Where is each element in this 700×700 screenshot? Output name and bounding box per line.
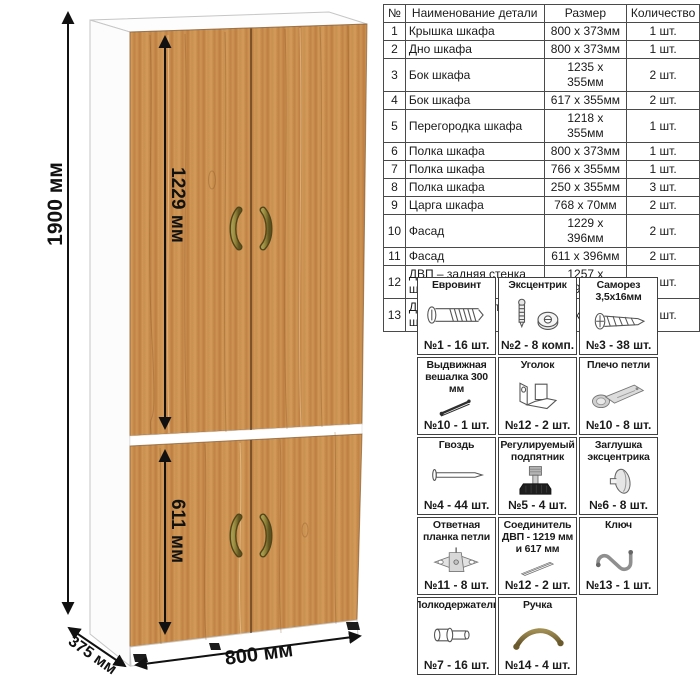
- table-row: 7Полка шкафа766 x 355мм1 шт.: [384, 161, 700, 179]
- wardrobe-side-panel: [90, 20, 130, 666]
- table-row: 1Крышка шкафа800 x 373мм1 шт.: [384, 23, 700, 41]
- hardware-item-title: Эксцентрик: [508, 280, 566, 292]
- door-handle-icon: [504, 617, 572, 653]
- hardware-item-ugolok: Уголок №12 - 2 шт.: [498, 357, 577, 435]
- table-cell: 2 шт.: [627, 197, 700, 215]
- table-cell: 6: [384, 143, 406, 161]
- table-row: 8Полка шкафа250 x 355мм3 шт.: [384, 179, 700, 197]
- pull-out-hanger-icon: [423, 395, 491, 418]
- table-cell: Крышка шкафа: [405, 23, 544, 41]
- header-number: №: [384, 5, 406, 23]
- table-cell: 2 шт.: [627, 59, 700, 92]
- hardware-item-count: №12 - 2 шт.: [505, 418, 571, 432]
- table-cell: Полка шкафа: [405, 179, 544, 197]
- hardware-item-cam-cover: Заглушка эксцентрика №6 - 8 шт.: [579, 437, 658, 515]
- table-cell: 1 шт.: [627, 110, 700, 143]
- hardware-item-samorez: Саморез 3,5х16мм №3 - 38 шт.: [579, 277, 658, 355]
- table-cell: 800 x 373мм: [544, 23, 627, 41]
- table-cell: Бок шкафа: [405, 92, 544, 110]
- hardware-item-title: Соединитель ДВП - 1219 мм и 617 мм: [500, 520, 575, 555]
- table-cell: 2: [384, 41, 406, 59]
- table-cell: 800 x 373мм: [544, 41, 627, 59]
- table-cell: 768 x 70мм: [544, 197, 627, 215]
- hardware-item-foot: Регулируемый подпятник №5 - 4 шт.: [498, 437, 577, 515]
- table-cell: 8: [384, 179, 406, 197]
- hardware-item-key: Ключ №13 - 1 шт.: [579, 517, 658, 595]
- hardware-item-count: №6 - 8 шт.: [589, 498, 648, 512]
- table-cell: 3: [384, 59, 406, 92]
- table-cell: 1 шт.: [627, 23, 700, 41]
- hinge-arm-icon: [585, 377, 653, 413]
- header-part-name: Наименование детали: [405, 5, 544, 23]
- wardrobe-foot: [346, 622, 360, 630]
- hardware-item-count: №7 - 16 шт.: [424, 658, 490, 672]
- hardware-item-eurovint: Евровинт №1 - 16 шт.: [417, 277, 496, 355]
- hardware-item-eccentric: Эксцентрик №2 - 8 комп.: [498, 277, 577, 355]
- table-cell: 11: [384, 248, 406, 266]
- hardware-item-count: №5 - 4 шт.: [508, 498, 567, 512]
- hinge-mounting-plate-icon: [423, 544, 491, 579]
- eccentric-cam-icon: [504, 297, 572, 333]
- table-row: 2Дно шкафа800 x 373мм1 шт.: [384, 41, 700, 59]
- table-cell: 617 x 355мм: [544, 92, 627, 110]
- table-cell: Фасад: [405, 215, 544, 248]
- hardware-item-title: Плечо петли: [587, 360, 650, 372]
- nail-icon: [423, 457, 491, 493]
- table-cell: 1235 x 355мм: [544, 59, 627, 92]
- table-cell: 12: [384, 266, 406, 299]
- shelf-pin-icon: [423, 617, 491, 653]
- table-cell: 250 x 355мм: [544, 179, 627, 197]
- hardware-item-count: №13 - 1 шт.: [586, 578, 652, 592]
- euro-screw-icon: [423, 297, 491, 333]
- hardware-item-title: Регулируемый подпятник: [500, 440, 575, 464]
- hex-key-icon: [585, 537, 653, 573]
- hardware-item-hinge-arm: Плечо петли №10 - 8 шт.: [579, 357, 658, 435]
- hardware-item-title: Выдвижная вешалка 300 мм: [419, 360, 494, 395]
- adjustable-foot-icon: [504, 464, 572, 499]
- dimension-height-label: 1900 мм: [44, 162, 68, 246]
- table-cell: 1 шт.: [627, 161, 700, 179]
- table-cell: Полка шкафа: [405, 161, 544, 179]
- table-row: 11Фасад611 x 396мм2 шт.: [384, 248, 700, 266]
- table-cell: Перегородка шкафа: [405, 110, 544, 143]
- self-tapping-screw-icon: [585, 304, 653, 339]
- hardware-item-count: №11 - 8 шт.: [424, 578, 489, 592]
- table-cell: 1229 x 396мм: [544, 215, 627, 248]
- hardware-item-count: №10 - 8 шт.: [586, 418, 652, 432]
- hardware-item-title: Ключ: [605, 520, 632, 532]
- table-row: 9Царга шкафа768 x 70мм2 шт.: [384, 197, 700, 215]
- table-row: 4Бок шкафа617 x 355мм2 шт.: [384, 92, 700, 110]
- header-size: Размер: [544, 5, 627, 23]
- hardware-item-shelf-pin: Полкодержатель №7 - 16 шт.: [417, 597, 496, 675]
- table-cell: 800 x 373мм: [544, 143, 627, 161]
- wardrobe-illustration: 1900 мм 1229 мм 611 мм 800 мм 375 мм: [0, 0, 430, 700]
- table-row: 5Перегородка шкафа1218 x 355мм1 шт.: [384, 110, 700, 143]
- hardware-item-count: №14 - 4 шт.: [505, 658, 571, 672]
- table-cell: 766 x 355мм: [544, 161, 627, 179]
- table-cell: 10: [384, 215, 406, 248]
- dimension-upper-door-label: 1229 мм: [166, 167, 188, 243]
- table-cell: 1: [384, 23, 406, 41]
- table-row: 6Полка шкафа800 x 373мм1 шт.: [384, 143, 700, 161]
- hardware-item-hanger: Выдвижная вешалка 300 мм №10 - 1 шт.: [417, 357, 496, 435]
- hardware-grid: Евровинт №1 - 16 шт. Эксцентрик №2 - 8 к…: [417, 277, 660, 675]
- hardware-item-count: №1 - 16 шт.: [424, 338, 490, 352]
- table-cell: 3 шт.: [627, 179, 700, 197]
- cam-cover-icon: [585, 464, 653, 499]
- table-cell: 13: [384, 299, 406, 332]
- table-cell: Фасад: [405, 248, 544, 266]
- hardware-item-title: Евровинт: [432, 280, 481, 292]
- table-cell: 7: [384, 161, 406, 179]
- dimension-lower-door-label: 611 мм: [166, 499, 188, 563]
- wardrobe-foot: [209, 643, 221, 650]
- hardware-item-title: Гвоздь: [439, 440, 474, 452]
- hardware-item-title: Ответная планка петли: [419, 520, 494, 544]
- table-cell: Дно шкафа: [405, 41, 544, 59]
- table-cell: 2 шт.: [627, 215, 700, 248]
- table-cell: Полка шкафа: [405, 143, 544, 161]
- hardware-item-count: №4 - 44 шт.: [424, 498, 490, 512]
- hardware-item-title: Полкодержатель: [417, 600, 496, 612]
- table-cell: 611 x 396мм: [544, 248, 627, 266]
- table-cell: 5: [384, 110, 406, 143]
- table-cell: 1218 x 355мм: [544, 110, 627, 143]
- corner-bracket-icon: [504, 377, 572, 413]
- hardware-item-hdf-connector: Соединитель ДВП - 1219 мм и 617 мм №12 -…: [498, 517, 577, 595]
- table-cell: 4: [384, 92, 406, 110]
- hardware-item-title: Заглушка эксцентрика: [581, 440, 656, 464]
- table-cell: Бок шкафа: [405, 59, 544, 92]
- hdf-connector-icon: [504, 555, 572, 578]
- table-cell: Царга шкафа: [405, 197, 544, 215]
- hardware-item-count: №2 - 8 комп.: [501, 338, 574, 352]
- table-cell: 9: [384, 197, 406, 215]
- header-quantity: Количество: [627, 5, 700, 23]
- hardware-item-title: Уголок: [521, 360, 555, 372]
- hardware-item-hinge-plate: Ответная планка петли №11 - 8 шт.: [417, 517, 496, 595]
- table-cell: 1 шт.: [627, 143, 700, 161]
- parts-table-header-row: № Наименование детали Размер Количество: [384, 5, 700, 23]
- hardware-item-title: Ручка: [523, 600, 552, 612]
- table-row: 3Бок шкафа1235 x 355мм2 шт.: [384, 59, 700, 92]
- wardrobe-foot: [133, 654, 148, 662]
- hardware-item-title: Саморез 3,5х16мм: [581, 280, 656, 304]
- hardware-item-nail: Гвоздь №4 - 44 шт.: [417, 437, 496, 515]
- hardware-item-count: №3 - 38 шт.: [586, 338, 652, 352]
- hardware-item-count: №12 - 2 шт.: [505, 578, 571, 592]
- table-row: 10Фасад1229 x 396мм2 шт.: [384, 215, 700, 248]
- table-cell: 1 шт.: [627, 41, 700, 59]
- hardware-item-count: №10 - 1 шт.: [424, 418, 490, 432]
- table-cell: 2 шт.: [627, 248, 700, 266]
- hardware-item-handle: Ручка №14 - 4 шт.: [498, 597, 577, 675]
- wardrobe-drawing: [0, 0, 430, 700]
- table-cell: 2 шт.: [627, 92, 700, 110]
